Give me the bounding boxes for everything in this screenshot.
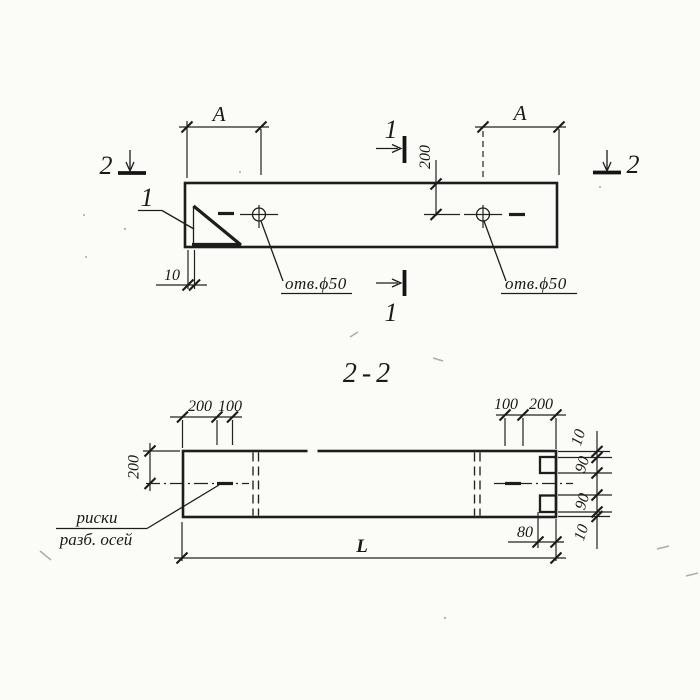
speck [686,573,698,576]
cut-1-top-label: 1 [385,115,398,144]
speck [444,617,446,619]
dim-length-text: L [355,536,368,557]
speck [124,228,126,230]
section-title: 2-2 [343,358,395,389]
technical-drawing: 1 отв.ϕ50 отв.ϕ50 A A [0,0,700,700]
hole-right-leader-line [484,221,506,281]
notch-bottom [540,496,556,513]
top-view: 1 отв.ϕ50 отв.ϕ50 A A [100,101,640,327]
hole-right-label: отв.ϕ50 [505,274,567,293]
hole-left-leader-line [261,221,283,281]
dim-10-text: 10 [164,267,180,284]
speck [350,332,358,337]
speck [83,214,85,216]
dim-100-right-text: 100 [494,396,518,413]
dim-200-right-text: 200 [529,396,553,413]
dim-halfheight-text: 200 [126,455,143,479]
dim-200-text: 200 [417,145,434,169]
dim-a-right-text: A [512,101,527,125]
cut-2-right-label: 2 [627,150,640,179]
axis-note-line1: риски [76,508,118,527]
cut-1-bottom-label: 1 [385,298,398,327]
speck [433,358,443,361]
speck [239,171,241,173]
cut-2-left-label: 2 [100,151,113,180]
speck [657,546,669,549]
dim-a-left-text: A [211,102,226,126]
axis-note-line2: разб. осей [59,530,133,549]
scan-noise [40,171,698,619]
speck [85,256,87,258]
section-view: 2-2 200 200 100 [56,358,612,564]
dim-10-top-text: 10 [568,427,589,447]
notch-top [540,457,556,473]
callout-leader-line [162,211,194,230]
speck [40,551,51,560]
dim-10-bottom-text: 10 [571,522,592,542]
dim-200-left-text: 200 [188,398,212,415]
dim-100-left-text: 100 [218,398,242,415]
hole-left-label: отв.ϕ50 [285,274,347,293]
drawing-sheet: 1 отв.ϕ50 отв.ϕ50 A A [0,0,700,700]
gusset-hypotenuse [194,206,242,245]
dim-80-text: 80 [517,524,533,541]
scan-line-break [308,446,318,455]
speck [599,186,601,188]
detail-callout-label: 1 [141,183,154,212]
